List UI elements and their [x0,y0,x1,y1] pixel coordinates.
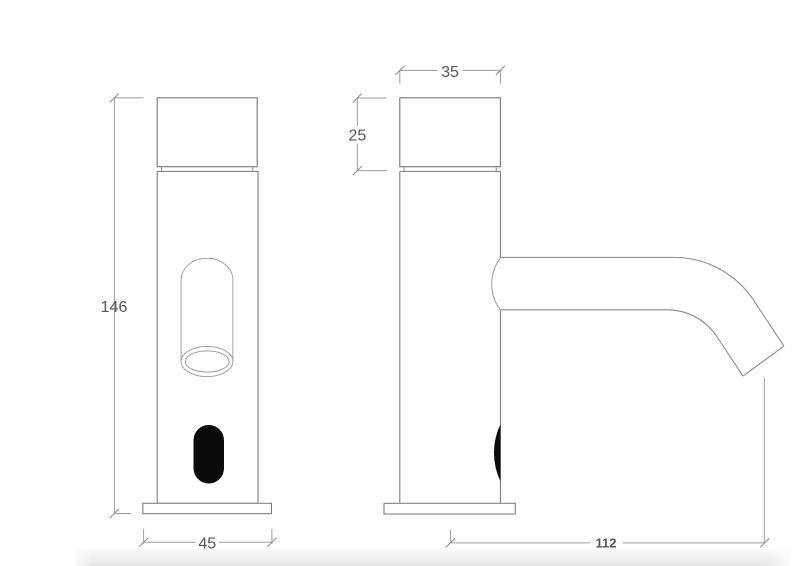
svg-text:35: 35 [441,64,459,81]
svg-text:45: 45 [198,536,216,553]
svg-text:25: 25 [349,128,367,145]
svg-text:146: 146 [101,299,128,316]
svg-text:112: 112 [596,536,617,551]
